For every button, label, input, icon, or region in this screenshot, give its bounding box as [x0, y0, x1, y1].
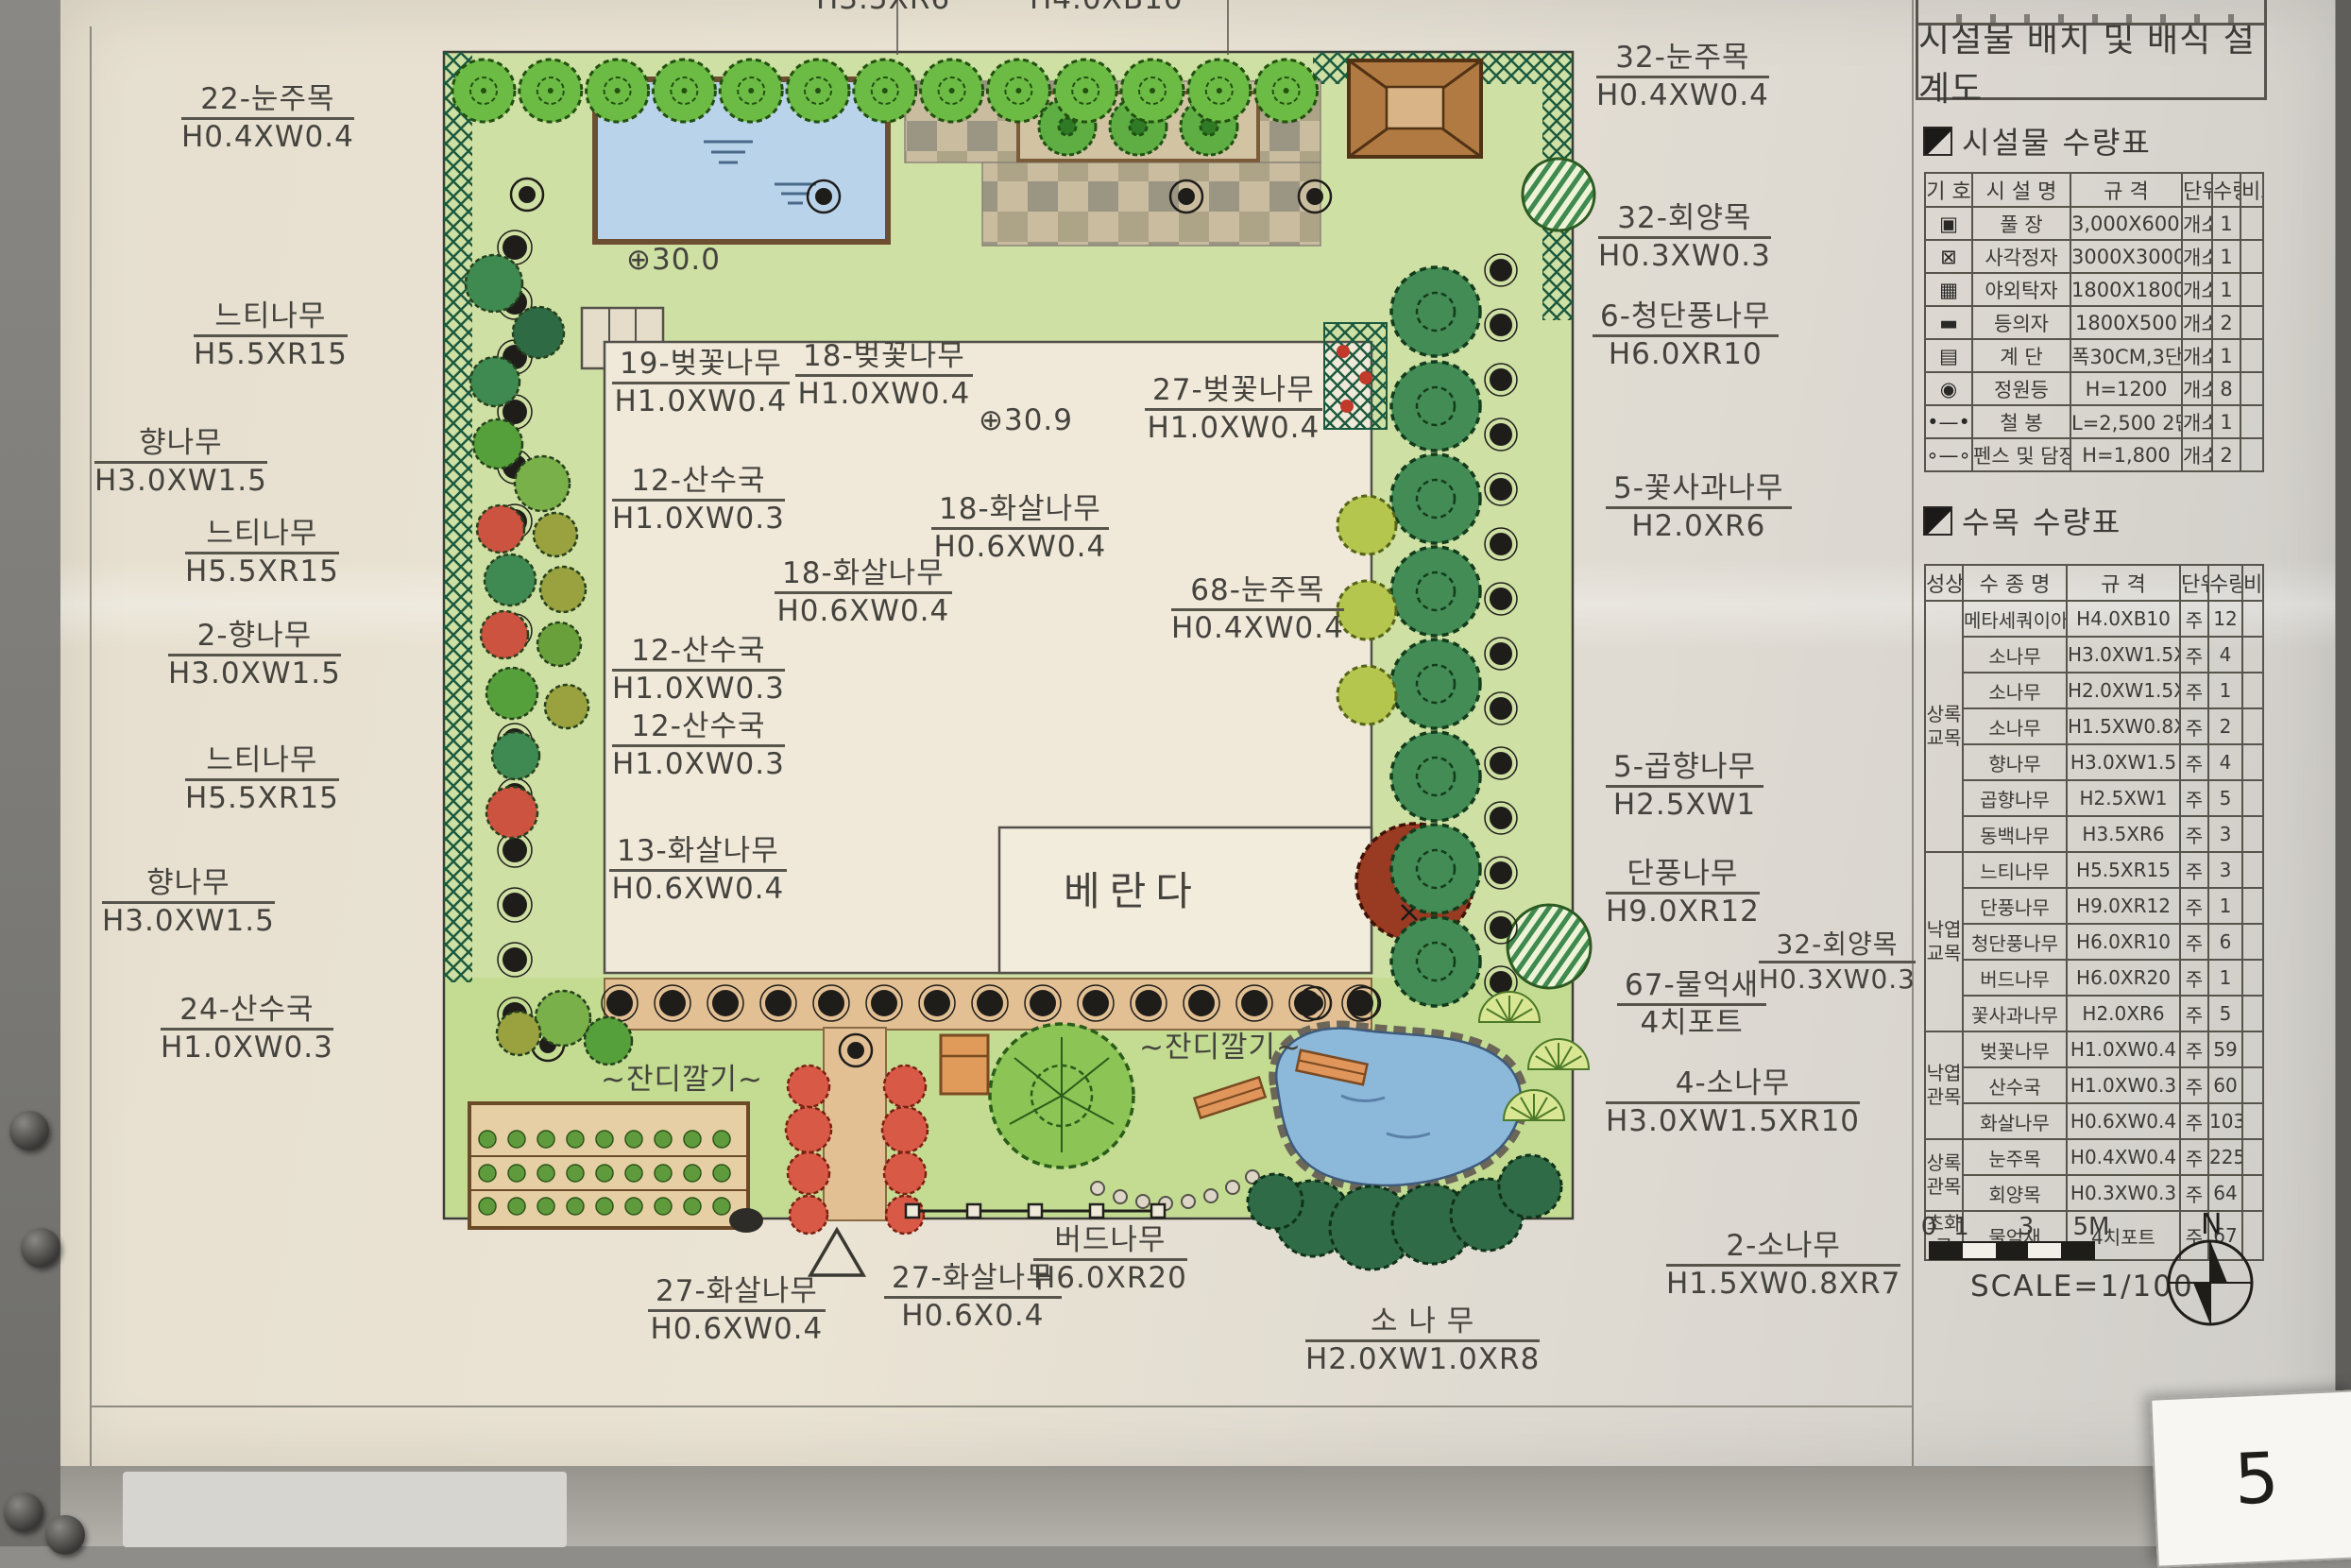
table-cell: 철 봉 — [1972, 405, 2070, 438]
table-cell: 64 — [2208, 1175, 2242, 1211]
scale-tick: 3 — [2019, 1213, 2035, 1241]
table-cell: 225 — [2208, 1139, 2242, 1175]
plan-label-spec: H2.5XW1 — [1606, 788, 1763, 822]
facility-row: ◉정원등H=1200개소8 — [1925, 372, 2263, 405]
facility-symbol-icon: ⊠ — [1925, 240, 1972, 273]
table-cell: 개소 — [2182, 438, 2212, 471]
table-cell: 주 — [2180, 673, 2208, 708]
plan-label: 5-꽃사과나무H2.0XR6 — [1606, 472, 1792, 544]
plan-label-spec: H2.0XW1.0XR8 — [1305, 1342, 1540, 1376]
table-cell — [2240, 372, 2263, 405]
push-pin — [4, 1492, 43, 1532]
plan-label-name: 13-화살나무 — [609, 835, 787, 872]
plan-label-name: 느티나무 — [194, 300, 348, 337]
plan-label: 12-산수국H1.0XW0.3 — [612, 635, 785, 707]
plan-label-spec: H3.0XW1.5 — [102, 904, 275, 938]
table-cell: H0.3XW0.3 — [2067, 1175, 2180, 1211]
tree-row: 향나무H3.0XW1.5주4 — [1925, 744, 2263, 780]
plan-label-name: 67-물억새 — [1617, 969, 1766, 1006]
plan-label: H4.0XB10 — [1022, 0, 1191, 17]
plan-label-name: 소 나 무 — [1305, 1305, 1540, 1342]
plan-label-spec: H5.5XR15 — [185, 554, 339, 588]
table-cell: 개소 — [2182, 339, 2212, 372]
plan-label-name: ~잔디깔기~ — [1132, 1031, 1309, 1065]
tree-row: 산수국H1.0XW0.3주60 — [1925, 1067, 2263, 1103]
table-cell: 5 — [2208, 996, 2242, 1031]
table-cell: H=1200 — [2070, 372, 2182, 405]
plan-label: 느티나무H5.5XR15 — [185, 744, 339, 816]
scale-segment — [2061, 1243, 2093, 1258]
tree-row: 소나무H2.0XW1.5XR8주1 — [1925, 673, 2263, 708]
table-cell: 2 — [2212, 438, 2240, 471]
table-cell: 단풍나무 — [1963, 888, 2067, 924]
tree-row: 낙엽 관목벚꽃나무H1.0XW0.4주59 — [1925, 1031, 2263, 1067]
table-cell — [2242, 1139, 2263, 1175]
table-cell: 주 — [2180, 996, 2208, 1031]
plan-label-name: 느티나무 — [185, 744, 339, 781]
table-cell — [2242, 816, 2263, 852]
plan-label: ~잔디깔기~ — [1132, 1031, 1309, 1065]
plan-label: ⊕30.0 — [619, 244, 728, 278]
plan-label: 단풍나무H9.0XR12 — [1606, 858, 1760, 929]
north-letter: N — [2201, 1209, 2222, 1241]
scale-segment — [1931, 1243, 1963, 1258]
table-cell: 산수국 — [1963, 1067, 2067, 1103]
table-cell: 1 — [2208, 960, 2242, 996]
tree-category: 상록 교목 — [1925, 601, 1963, 852]
tree-row: 꽃사과나무H2.0XR6주5 — [1925, 996, 2263, 1031]
table-cell: 59 — [2208, 1031, 2242, 1067]
table-cell — [2240, 273, 2263, 306]
plan-label: 68-눈주목H0.4XW0.4 — [1171, 574, 1344, 646]
plan-label: 12-산수국H1.0XW0.3 — [612, 710, 785, 782]
column-header: 비고 — [2240, 173, 2263, 207]
plan-label: 6-청단풍나무H6.0XR10 — [1593, 300, 1779, 372]
table-cell: H1.0XW0.3 — [2067, 1067, 2180, 1103]
facility-row: ▦야외탁자1800X1800개소1 — [1925, 273, 2263, 306]
scale-segment — [2028, 1243, 2060, 1258]
table-cell: 계 단 — [1972, 339, 2070, 372]
table-cell — [2242, 1175, 2263, 1211]
facility-row: ⊠사각정자3000X3000개소1 — [1925, 240, 2263, 273]
table-cell: H1.5XW0.8XR7 — [2067, 708, 2180, 744]
table-cell: 주 — [2180, 1031, 2208, 1067]
plan-label-name: 5-곱향나무 — [1606, 751, 1763, 788]
plan-label-spec: H0.6XW0.4 — [931, 530, 1109, 564]
plan-label: 18-벚꽃나무H1.0XW0.4 — [795, 340, 973, 412]
plan-label-spec: H1.0XW0.3 — [161, 1031, 333, 1065]
plan-label: 2-향나무H3.0XW1.5 — [168, 620, 341, 691]
plan-label-name: 버드나무 — [1033, 1224, 1187, 1261]
plan-label-name: 27-화살나무 — [648, 1275, 826, 1312]
plan-label: 32-회양목H0.3XW0.3 — [1598, 202, 1771, 274]
table-cell: 소나무 — [1963, 637, 2067, 673]
plan-label: 4-소나무H3.0XW1.5XR10 — [1606, 1067, 1860, 1139]
table-cell: L=2,500 2단 — [2070, 405, 2182, 438]
drawing-title: 시설물 배치 및 배식 설계도 — [1918, 26, 2264, 97]
facility-row: ∘—∘펜스 및 담장H=1,800개소2 — [1925, 438, 2263, 471]
plan-label-spec: H0.4XW0.4 — [1171, 611, 1344, 645]
tree-quantity-table: 성상수 종 명규 격단위수량비고상록 교목메타세쿼이아H4.0XB10주12소나… — [1924, 564, 2264, 1261]
plan-label-spec: 4치포트 — [1617, 1006, 1766, 1040]
table-cell: 주 — [2180, 960, 2208, 996]
table-cell: 1 — [2208, 888, 2242, 924]
plan-label-name: 6-청단풍나무 — [1593, 300, 1779, 337]
table-cell: 소나무 — [1963, 673, 2067, 708]
table-cell: 향나무 — [1963, 744, 2067, 780]
table-cell: 개소 — [2182, 372, 2212, 405]
column-header: 성상 — [1925, 565, 1963, 601]
facility-table-heading: 시설물 수량표 — [1923, 119, 2152, 162]
table-cell: 정원등 — [1972, 372, 2070, 405]
table-cell: 개소 — [2182, 207, 2212, 240]
column-header: 수 종 명 — [1963, 565, 2067, 601]
plan-label: 27-벚꽃나무H1.0XW0.4 — [1145, 374, 1322, 446]
plan-label-spec: H5.5XR15 — [194, 337, 348, 371]
plan-label-spec: H0.3XW0.3 — [1759, 963, 1916, 995]
column-header: 비고 — [2242, 565, 2263, 601]
plan-label-name: 18-벚꽃나무 — [795, 340, 973, 377]
table-cell: H0.4XW0.4 — [2067, 1139, 2180, 1175]
table-cell — [2242, 673, 2263, 708]
facility-symbol-icon: ▤ — [1925, 339, 1972, 372]
table-cell — [2242, 637, 2263, 673]
table-cell — [2240, 207, 2263, 240]
plan-label: 22-눈주목H0.4XW0.4 — [181, 83, 354, 155]
plan-label-name: 18-화살나무 — [931, 493, 1109, 530]
table-cell: 103 — [2208, 1103, 2242, 1139]
facility-symbol-icon: ▬ — [1925, 306, 1972, 339]
table-cell — [2242, 601, 2263, 637]
table-cell: H6.0XR10 — [2067, 924, 2180, 960]
plan-label-name: ⊕30.9 — [971, 404, 1081, 438]
plan-label: 느티나무H5.5XR15 — [194, 300, 348, 372]
table-cell: 회양목 — [1963, 1175, 2067, 1211]
table-cell: 메타세쿼이아 — [1963, 601, 2067, 637]
facility-row: •—•철 봉L=2,500 2단개소1 — [1925, 405, 2263, 438]
column-header: 규 격 — [2067, 565, 2180, 601]
plan-label-spec: H0.6X0.4 — [884, 1299, 1062, 1333]
table-cell: 3 — [2208, 816, 2242, 852]
scale-segment — [1996, 1243, 2028, 1258]
table-cell: 동백나무 — [1963, 816, 2067, 852]
table-cell: H1.0XW0.4 — [2067, 1031, 2180, 1067]
table-cell: 1 — [2212, 339, 2240, 372]
plan-label-spec: H0.4XW0.4 — [181, 120, 354, 154]
plan-label: 버드나무H6.0XR20 — [1033, 1224, 1187, 1296]
plan-label-name: H3.5XR6 — [809, 0, 958, 17]
plan-label-name: 느티나무 — [185, 518, 339, 554]
plan-label-spec: H3.0XW1.5 — [94, 464, 267, 498]
scale-segment — [1963, 1243, 1995, 1258]
table-cell — [2240, 240, 2263, 273]
table-cell: 12 — [2208, 601, 2242, 637]
tree-category: 낙엽 교목 — [1925, 852, 1963, 1031]
plan-label-spec: H2.0XR6 — [1606, 509, 1792, 543]
facility-symbol-icon: ▦ — [1925, 273, 1972, 306]
table-cell — [2242, 960, 2263, 996]
column-header: 규 격 — [2070, 173, 2182, 207]
plan-label-name: 22-눈주목 — [181, 83, 354, 120]
column-header: 시 설 명 — [1972, 173, 2070, 207]
header-row: 성상수 종 명규 격단위수량비고 — [1925, 565, 2263, 601]
table-cell — [2240, 438, 2263, 471]
table-cell — [2240, 339, 2263, 372]
plan-label-name: 12-산수국 — [612, 635, 785, 672]
plan-label-name: ⊕30.0 — [619, 244, 728, 278]
column-header: 단위 — [2182, 173, 2212, 207]
table-cell: H0.6XW0.4 — [2067, 1103, 2180, 1139]
tree-row: 동백나무H3.5XR6주3 — [1925, 816, 2263, 852]
tree-row: 상록 교목메타세쿼이아H4.0XB10주12 — [1925, 601, 2263, 637]
tree-row: 낙엽 교목느티나무H5.5XR15주3 — [1925, 852, 2263, 888]
tree-row: 소나무H1.5XW0.8XR7주2 — [1925, 708, 2263, 744]
table-cell: 청단풍나무 — [1963, 924, 2067, 960]
page-number: 5 — [2233, 1438, 2281, 1521]
tree-category: 낙엽 관목 — [1925, 1031, 1963, 1139]
table-cell — [2242, 780, 2263, 816]
table-cell: 꽃사과나무 — [1963, 996, 2067, 1031]
plan-label: 5-곱향나무H2.5XW1 — [1606, 751, 1763, 823]
plan-label-spec: H3.0XW1.5XR10 — [1606, 1104, 1860, 1138]
cut-text-marks — [1928, 14, 2249, 23]
plan-label-name: 4-소나무 — [1606, 1067, 1860, 1104]
plan-label-name: 32-회양목 — [1759, 929, 1916, 963]
tree-table-heading: 수목 수량표 — [1923, 499, 2121, 542]
table-cell: 주 — [2180, 1067, 2208, 1103]
plan-label-spec: H0.6XW0.4 — [775, 594, 952, 628]
facility-symbol-icon: •—• — [1925, 405, 1972, 438]
facility-symbol-icon: ◉ — [1925, 372, 1972, 405]
plan-label-spec: H5.5XR15 — [185, 781, 339, 815]
table-cell: H4.0XB10 — [2067, 601, 2180, 637]
push-pin — [21, 1228, 60, 1268]
table-cell: H9.0XR12 — [2067, 888, 2180, 924]
plan-label-spec: H6.0XR10 — [1593, 337, 1779, 371]
tree-row: 화살나무H0.6XW0.4주103 — [1925, 1103, 2263, 1139]
plan-label-spec: H1.0XW0.4 — [612, 384, 790, 418]
table-cell: 3000X3000 — [2070, 240, 2182, 273]
table-cell: 개소 — [2182, 306, 2212, 339]
table-cell — [2242, 996, 2263, 1031]
tree-row: 청단풍나무H6.0XR10주6 — [1925, 924, 2263, 960]
push-pin — [9, 1111, 49, 1150]
plan-label: H3.5XR6 — [809, 0, 958, 17]
table-cell — [2242, 708, 2263, 744]
table-cell: 주 — [2180, 852, 2208, 888]
plan-label: 27-화살나무H0.6XW0.4 — [648, 1275, 826, 1347]
facility-symbol-icon: ▣ — [1925, 207, 1972, 240]
plan-label-name: 27-벚꽃나무 — [1145, 374, 1322, 411]
scrap-paper-edge — [123, 1472, 567, 1547]
plan-label-name: 24-산수국 — [161, 994, 333, 1031]
table-cell — [2242, 744, 2263, 780]
photo-board-left-edge — [0, 0, 60, 1546]
table-cell — [2242, 1031, 2263, 1067]
plan-label-spec: H0.6XW0.4 — [648, 1312, 826, 1346]
push-pin — [45, 1515, 85, 1555]
plan-label: 느티나무H5.5XR15 — [185, 518, 339, 589]
plan-label-name: 19-벚꽃나무 — [612, 348, 790, 384]
table-cell: H2.0XW1.5XR8 — [2067, 673, 2180, 708]
plan-label-name: 12-산수국 — [612, 465, 785, 502]
table-cell — [2242, 1067, 2263, 1103]
table-cell: 벚꽃나무 — [1963, 1031, 2067, 1067]
table-cell: 버드나무 — [1963, 960, 2067, 996]
tree-row: 단풍나무H9.0XR12주1 — [1925, 888, 2263, 924]
table-cell: 개소 — [2182, 405, 2212, 438]
plan-label-spec: H1.0XW0.4 — [1145, 411, 1322, 445]
table-cell: H3.0XW1.5 — [2067, 744, 2180, 780]
plan-label-name: 향나무 — [94, 427, 267, 464]
table-cell — [2242, 924, 2263, 960]
table-cell: H=1,800 — [2070, 438, 2182, 471]
plan-label: 18-화살나무H0.6XW0.4 — [931, 493, 1109, 565]
facility-symbol-icon: ∘—∘ — [1925, 438, 1972, 471]
plan-label-spec: H1.5XW0.8XR7 — [1666, 1267, 1900, 1301]
table-cell: 주 — [2180, 1175, 2208, 1211]
table-cell: 4 — [2208, 744, 2242, 780]
table-cell: 8 — [2212, 372, 2240, 405]
tree-row: 곱향나무H2.5XW1주5 — [1925, 780, 2263, 816]
plan-label-spec: H0.3XW0.3 — [1598, 239, 1771, 273]
table-cell: H2.0XR6 — [2067, 996, 2180, 1031]
plan-label: 24-산수국H1.0XW0.3 — [161, 994, 333, 1065]
page-number-card: 5 — [2150, 1389, 2351, 1567]
table-cell: 야외탁자 — [1972, 273, 2070, 306]
column-header: 수량 — [2212, 173, 2240, 207]
plan-label-spec: H6.0XR20 — [1033, 1261, 1187, 1295]
column-header: 단위 — [2180, 565, 2208, 601]
plan-label: 베란다 — [1056, 869, 1209, 915]
table-cell: 6 — [2208, 924, 2242, 960]
tree-row: 버드나무H6.0XR20주1 — [1925, 960, 2263, 996]
scale-tick: 1 — [1953, 1213, 1969, 1241]
scale-bar-ticks: 0135M — [1929, 1213, 2091, 1239]
table-cell: 1800X1800 — [2070, 273, 2182, 306]
table-cell — [2242, 1103, 2263, 1139]
column-header: 기 호 — [1925, 173, 1972, 207]
facility-quantity-table: 기 호시 설 명규 격단위수량비고▣풀 장3,000X6000개소1⊠사각정자3… — [1924, 172, 2264, 472]
facility-row: ▣풀 장3,000X6000개소1 — [1925, 207, 2263, 240]
plan-label-name: 12-산수국 — [612, 710, 785, 747]
plan-label: 32-회양목H0.3XW0.3 — [1759, 929, 1916, 995]
plan-label-name: 5-꽃사과나무 — [1606, 472, 1792, 509]
plan-label: 소 나 무H2.0XW1.0XR8 — [1305, 1305, 1540, 1377]
table-cell: 주 — [2180, 816, 2208, 852]
table-cell: 주 — [2180, 888, 2208, 924]
plan-label-name: 18-화살나무 — [775, 557, 952, 594]
scale-bar — [1929, 1241, 2095, 1260]
plan-label: 32-눈주목H0.4XW0.4 — [1596, 42, 1769, 113]
north-arrow: N — [2152, 1209, 2269, 1336]
facility-row: ▬등의자1800X500개소2 — [1925, 306, 2263, 339]
plan-label-spec: H1.0XW0.4 — [795, 377, 973, 411]
table-cell: H3.0XW1.5XR10 — [2067, 637, 2180, 673]
table-cell: 5 — [2208, 780, 2242, 816]
table-cell: 등의자 — [1972, 306, 2070, 339]
table-cell: 주 — [2180, 1139, 2208, 1175]
table-cell: 주 — [2180, 924, 2208, 960]
plan-label: 67-물억새4치포트 — [1617, 969, 1766, 1041]
table-cell: 주 — [2180, 780, 2208, 816]
table-cell: 주 — [2180, 708, 2208, 744]
table-cell: 주 — [2180, 744, 2208, 780]
plan-label-name: 32-눈주목 — [1596, 42, 1769, 78]
plan-label: 13-화살나무H0.6XW0.4 — [609, 835, 787, 907]
table-cell: 1800X500 — [2070, 306, 2182, 339]
plan-label-name: ~잔디깔기~ — [593, 1064, 771, 1098]
plan-label-name: 32-회양목 — [1598, 202, 1771, 239]
table-cell: 느티나무 — [1963, 852, 2067, 888]
table-cell: 개소 — [2182, 273, 2212, 306]
table-cell: 1 — [2212, 405, 2240, 438]
table-cell: 폭30CM,3단 — [2070, 339, 2182, 372]
plan-label-spec: H1.0XW0.3 — [612, 747, 785, 781]
section-marker-icon — [1923, 127, 1952, 156]
table-cell — [2242, 888, 2263, 924]
table-cell: 풀 장 — [1972, 207, 2070, 240]
table-cell: 주 — [2180, 1103, 2208, 1139]
table-cell: 1 — [2208, 673, 2242, 708]
table-cell: H6.0XR20 — [2067, 960, 2180, 996]
facility-row: ▤계 단폭30CM,3단개소1 — [1925, 339, 2263, 372]
table-cell: 주 — [2180, 601, 2208, 637]
plan-label-name: H4.0XB10 — [1022, 0, 1191, 17]
tree-row: 소나무H3.0XW1.5XR10주4 — [1925, 637, 2263, 673]
table-cell: 2 — [2208, 708, 2242, 744]
scale-tick: 5M — [2073, 1213, 2110, 1241]
tree-category: 상록 관목 — [1925, 1139, 1963, 1211]
table-cell: 1 — [2212, 273, 2240, 306]
plan-label-spec: H1.0XW0.3 — [612, 672, 785, 706]
tree-row: 상록 관목눈주목H0.4XW0.4주225 — [1925, 1139, 2263, 1175]
table-cell — [2242, 852, 2263, 888]
table-cell: H2.5XW1 — [2067, 780, 2180, 816]
plan-label-spec: H9.0XR12 — [1606, 895, 1760, 929]
plan-label-name: 단풍나무 — [1606, 858, 1760, 895]
plan-label: 향나무H3.0XW1.5 — [102, 867, 275, 939]
plan-label: 2-소나무H1.5XW0.8XR7 — [1666, 1230, 1900, 1302]
table-cell: 3,000X6000 — [2070, 207, 2182, 240]
table-cell: 주 — [2180, 637, 2208, 673]
table-cell: H3.5XR6 — [2067, 816, 2180, 852]
plan-label: ⊕30.9 — [971, 404, 1081, 438]
plan-label: 19-벚꽃나무H1.0XW0.4 — [612, 348, 790, 419]
header-row: 기 호시 설 명규 격단위수량비고 — [1925, 173, 2263, 207]
table-cell: 소나무 — [1963, 708, 2067, 744]
plan-label: ~잔디깔기~ — [593, 1064, 771, 1098]
plan-label-name: 2-소나무 — [1666, 1230, 1900, 1267]
plan-label-name: 베란다 — [1056, 869, 1209, 915]
tree-row: 회양목H0.3XW0.3주64 — [1925, 1175, 2263, 1211]
table-cell: 1 — [2212, 240, 2240, 273]
title-block: 시설물 배치 및 배식 설계도 — [1916, 0, 2267, 100]
plan-label: 12-산수국H1.0XW0.3 — [612, 465, 785, 537]
table-cell: H5.5XR15 — [2067, 852, 2180, 888]
table-cell: 1 — [2212, 207, 2240, 240]
plan-label-spec: H3.0XW1.5 — [168, 656, 341, 690]
table-cell: 3 — [2208, 852, 2242, 888]
plan-label: 18-화살나무H0.6XW0.4 — [775, 557, 952, 629]
table-cell: 60 — [2208, 1067, 2242, 1103]
plan-label-name: 향나무 — [102, 867, 275, 904]
plan-label-spec: H0.4XW0.4 — [1596, 78, 1769, 112]
plan-label-name: 68-눈주목 — [1171, 574, 1344, 611]
table-cell: 4 — [2208, 637, 2242, 673]
table-cell: 곱향나무 — [1963, 780, 2067, 816]
plan-label: 향나무H3.0XW1.5 — [94, 427, 267, 499]
